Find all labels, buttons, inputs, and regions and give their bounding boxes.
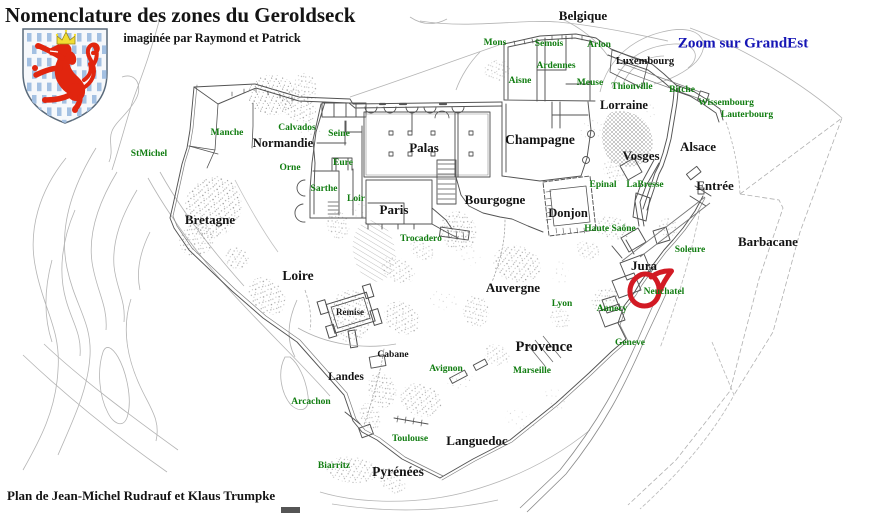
svg-text:Lorraine: Lorraine [600,98,648,112]
svg-text:Sarthe: Sarthe [311,184,338,194]
svg-text:Geneve: Geneve [615,338,645,348]
svg-text:Wissembourg: Wissembourg [698,98,754,108]
svg-text:Lauterbourg: Lauterbourg [721,110,774,120]
svg-text:Ardennes: Ardennes [536,61,575,71]
svg-text:Arlon: Arlon [587,40,611,50]
svg-text:Landes: Landes [328,371,364,383]
svg-text:Nomenclature des zones du Gero: Nomenclature des zones du Geroldseck [5,3,356,27]
svg-text:Remise: Remise [336,307,364,317]
svg-text:Belgique: Belgique [559,8,608,23]
svg-text:StMichel: StMichel [131,149,168,159]
svg-text:Provence: Provence [516,339,573,355]
svg-text:Paris: Paris [380,202,409,217]
svg-text:Arcachon: Arcachon [291,397,331,407]
svg-text:Pyrénées: Pyrénées [372,464,424,479]
svg-text:Auvergne: Auvergne [486,280,540,295]
svg-text:Meuse: Meuse [577,78,603,88]
svg-text:Aisne: Aisne [509,76,532,86]
svg-text:Haute Saône: Haute Saône [584,224,635,234]
svg-text:Zoom sur GrandEst: Zoom sur GrandEst [678,35,809,52]
svg-text:Manche: Manche [211,128,244,138]
svg-text:Semois: Semois [535,39,564,49]
svg-text:Palas: Palas [409,140,439,155]
svg-text:Barbacane: Barbacane [738,234,798,249]
svg-text:Entrée: Entrée [696,178,734,193]
svg-text:Loire: Loire [282,268,313,283]
svg-text:Eure: Eure [333,158,353,168]
svg-text:Bourgogne: Bourgogne [465,192,526,207]
svg-text:Donjon: Donjon [548,206,588,220]
svg-text:Languedoc: Languedoc [446,433,508,448]
svg-text:imaginée par Raymond et Patric: imaginée par Raymond et Patrick [123,31,301,45]
svg-text:Bitche: Bitche [669,85,695,95]
svg-text:Trocadero: Trocadero [400,234,442,244]
svg-text:Luxembourg: Luxembourg [616,56,675,67]
svg-text:Vosges: Vosges [622,148,659,163]
svg-text:Seine: Seine [328,129,350,139]
svg-text:Alsace: Alsace [680,139,716,154]
svg-text:Cabane: Cabane [377,350,408,360]
svg-text:Normandie: Normandie [253,136,314,150]
svg-text:Neuchatel: Neuchatel [644,287,685,297]
svg-text:Avignon: Avignon [429,364,463,374]
svg-text:Calvados: Calvados [278,123,316,133]
svg-text:Thionville: Thionville [611,82,652,92]
svg-text:Annecy: Annecy [597,304,628,314]
svg-text:Biarritz: Biarritz [318,461,351,471]
svg-text:Loir: Loir [347,194,366,204]
svg-text:Epinal: Epinal [590,180,617,190]
svg-text:Lyon: Lyon [552,299,573,309]
svg-text:Soleure: Soleure [675,245,705,255]
svg-text:Bretagne: Bretagne [185,212,236,227]
svg-text:Plan de Jean-Michel Rudrauf et: Plan de Jean-Michel Rudrauf et Klaus Tru… [7,488,275,503]
svg-text:Marseille: Marseille [513,366,551,376]
svg-text:Jura: Jura [631,258,658,273]
svg-text:Orne: Orne [279,163,300,173]
svg-text:LaBresse: LaBresse [626,180,663,190]
svg-text:Champagne: Champagne [505,132,575,147]
svg-text:Toulouse: Toulouse [392,434,428,444]
svg-text:Mons: Mons [484,38,507,48]
